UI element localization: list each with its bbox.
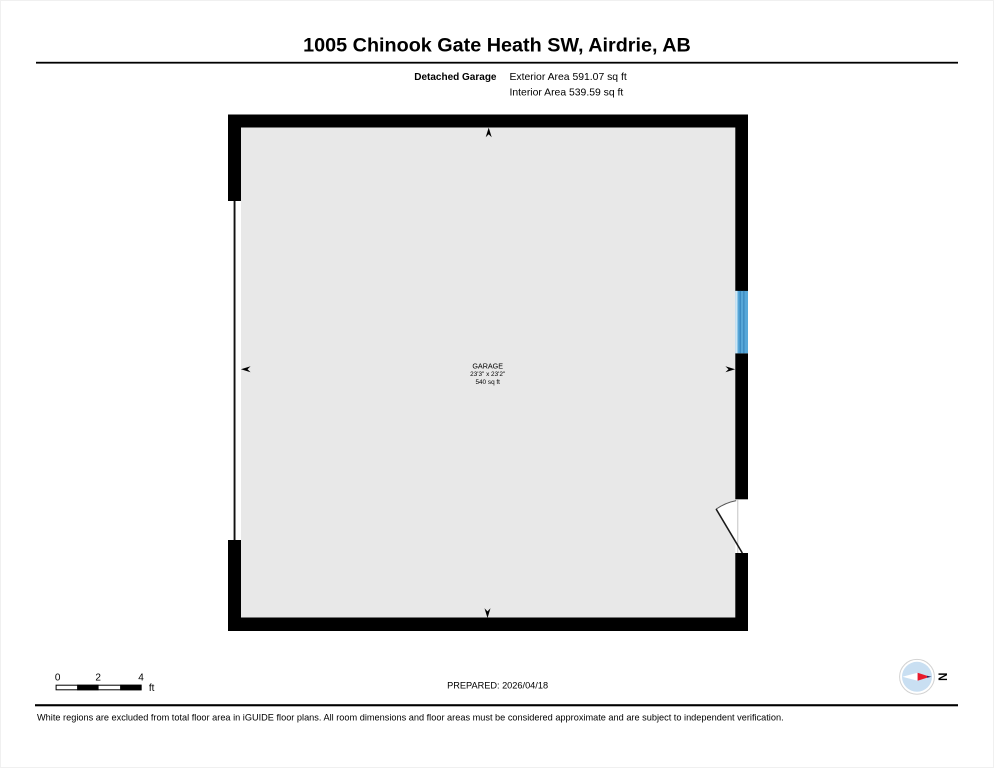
svg-text:PREPARED: 2026/04/18: PREPARED: 2026/04/18: [447, 681, 548, 691]
svg-text:1005 Chinook Gate Heath SW, Ai: 1005 Chinook Gate Heath SW, Airdrie, AB: [303, 35, 691, 57]
svg-text:White regions are excluded fro: White regions are excluded from total fl…: [37, 712, 784, 722]
svg-text:GARAGE: GARAGE: [472, 362, 503, 371]
svg-text:Interior Area 539.59 sq ft: Interior Area 539.59 sq ft: [510, 88, 624, 99]
svg-text:23'3" x 23'2": 23'3" x 23'2": [470, 371, 505, 378]
svg-text:N: N: [935, 673, 947, 681]
svg-text:0: 0: [55, 673, 61, 684]
svg-text:540 sq ft: 540 sq ft: [475, 379, 500, 386]
svg-text:2: 2: [95, 673, 101, 684]
svg-text:Detached Garage: Detached Garage: [414, 72, 497, 83]
svg-text:4: 4: [138, 673, 144, 684]
svg-text:ft: ft: [149, 683, 155, 694]
svg-text:Exterior Area 591.07 sq ft: Exterior Area 591.07 sq ft: [510, 72, 627, 83]
